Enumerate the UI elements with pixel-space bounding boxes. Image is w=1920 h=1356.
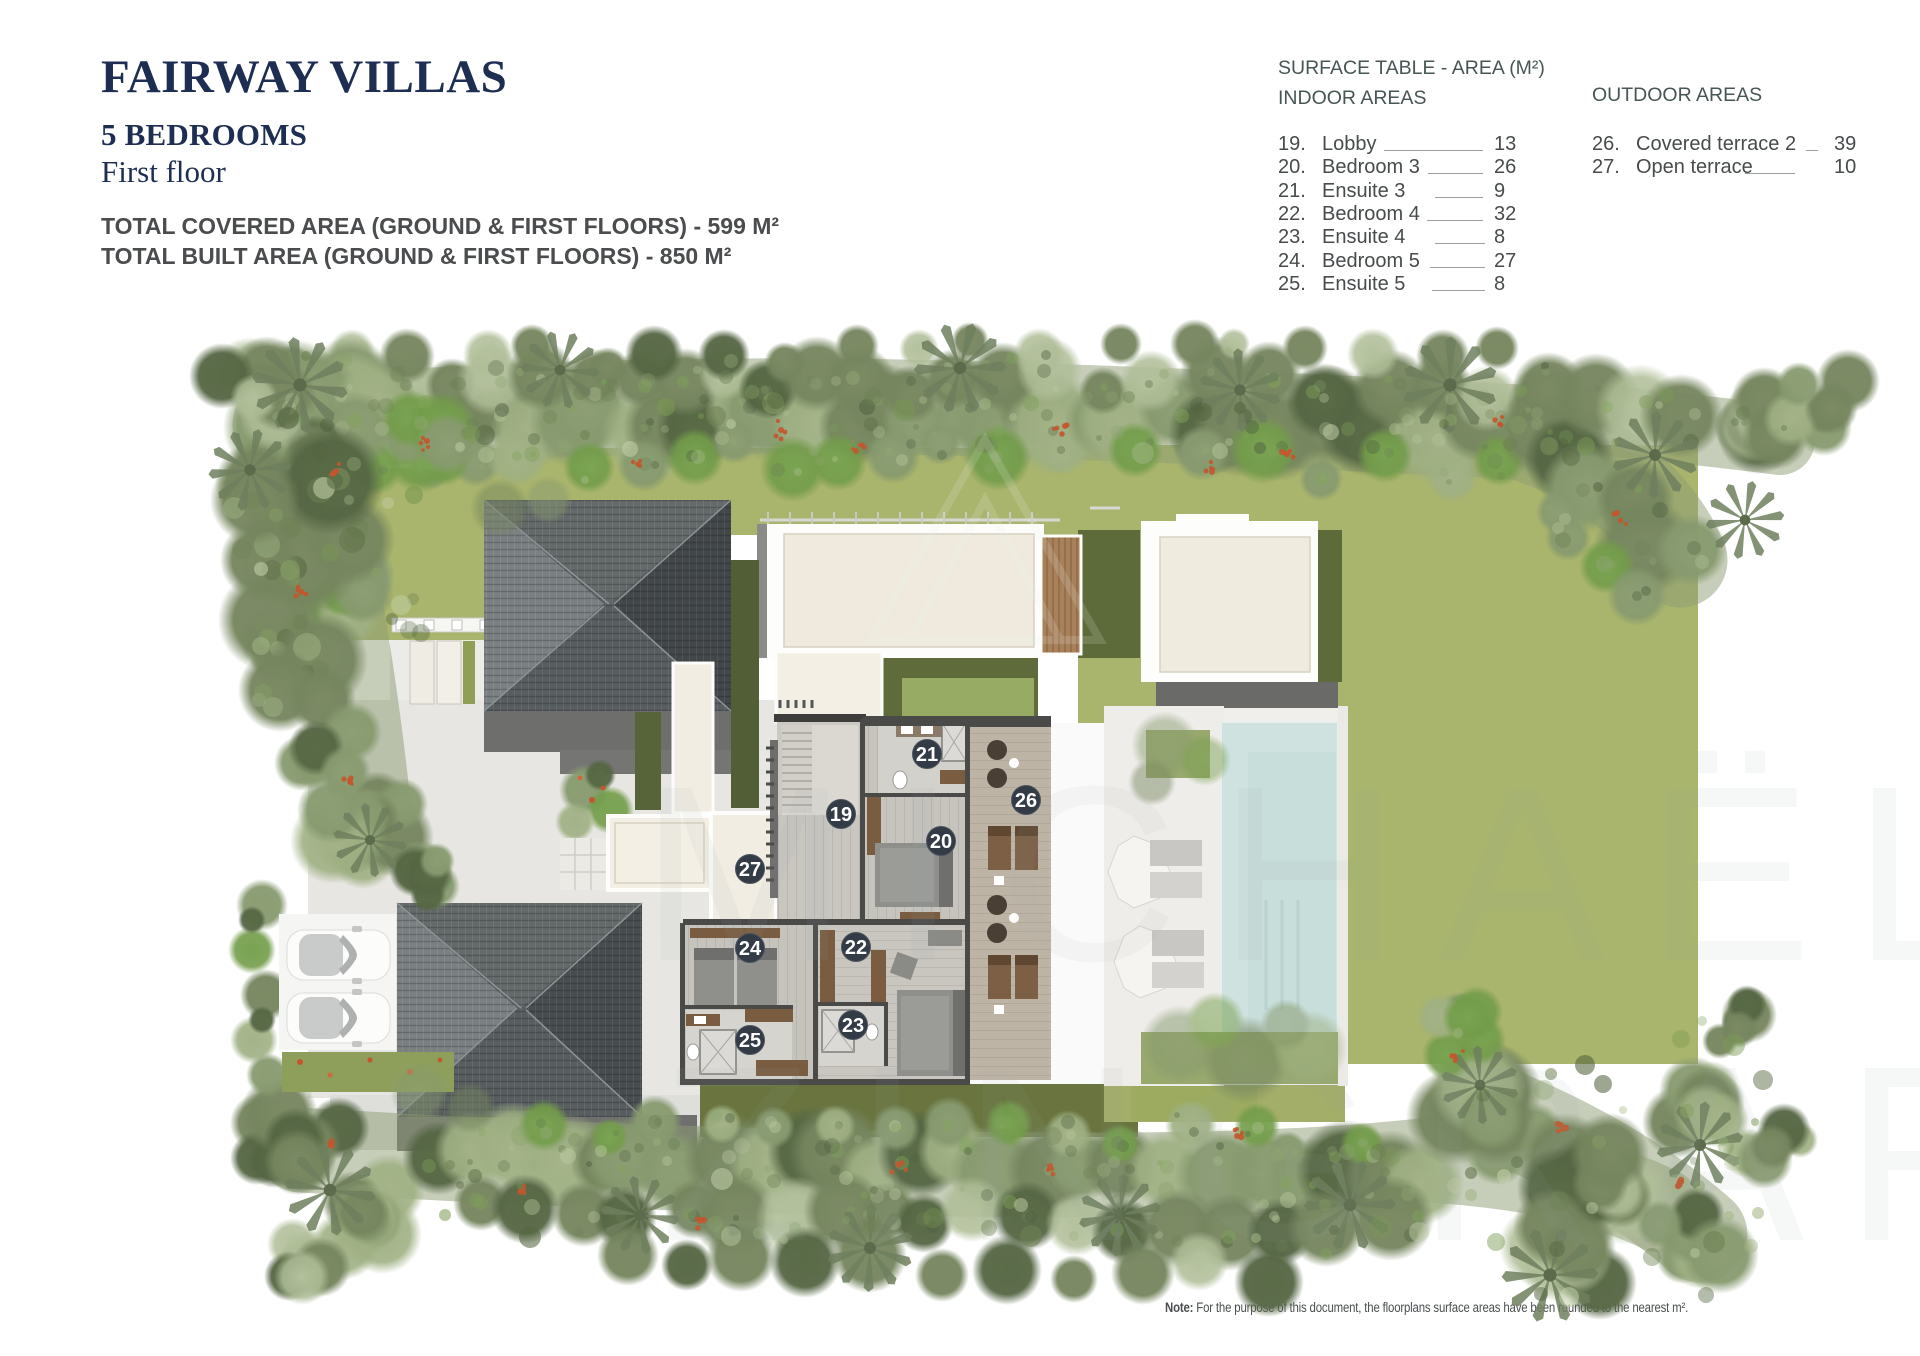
svg-text:27: 27 [739, 859, 761, 881]
svg-text:21: 21 [916, 744, 938, 766]
svg-text:20: 20 [930, 831, 952, 853]
svg-text:23: 23 [842, 1015, 864, 1037]
svg-text:26: 26 [1015, 790, 1037, 812]
svg-text:22: 22 [845, 937, 867, 959]
svg-text:19: 19 [830, 804, 852, 826]
svg-text:MICHAËL: MICHAËL [640, 734, 1920, 1013]
svg-text:24: 24 [739, 938, 762, 960]
svg-text:25: 25 [739, 1030, 761, 1052]
